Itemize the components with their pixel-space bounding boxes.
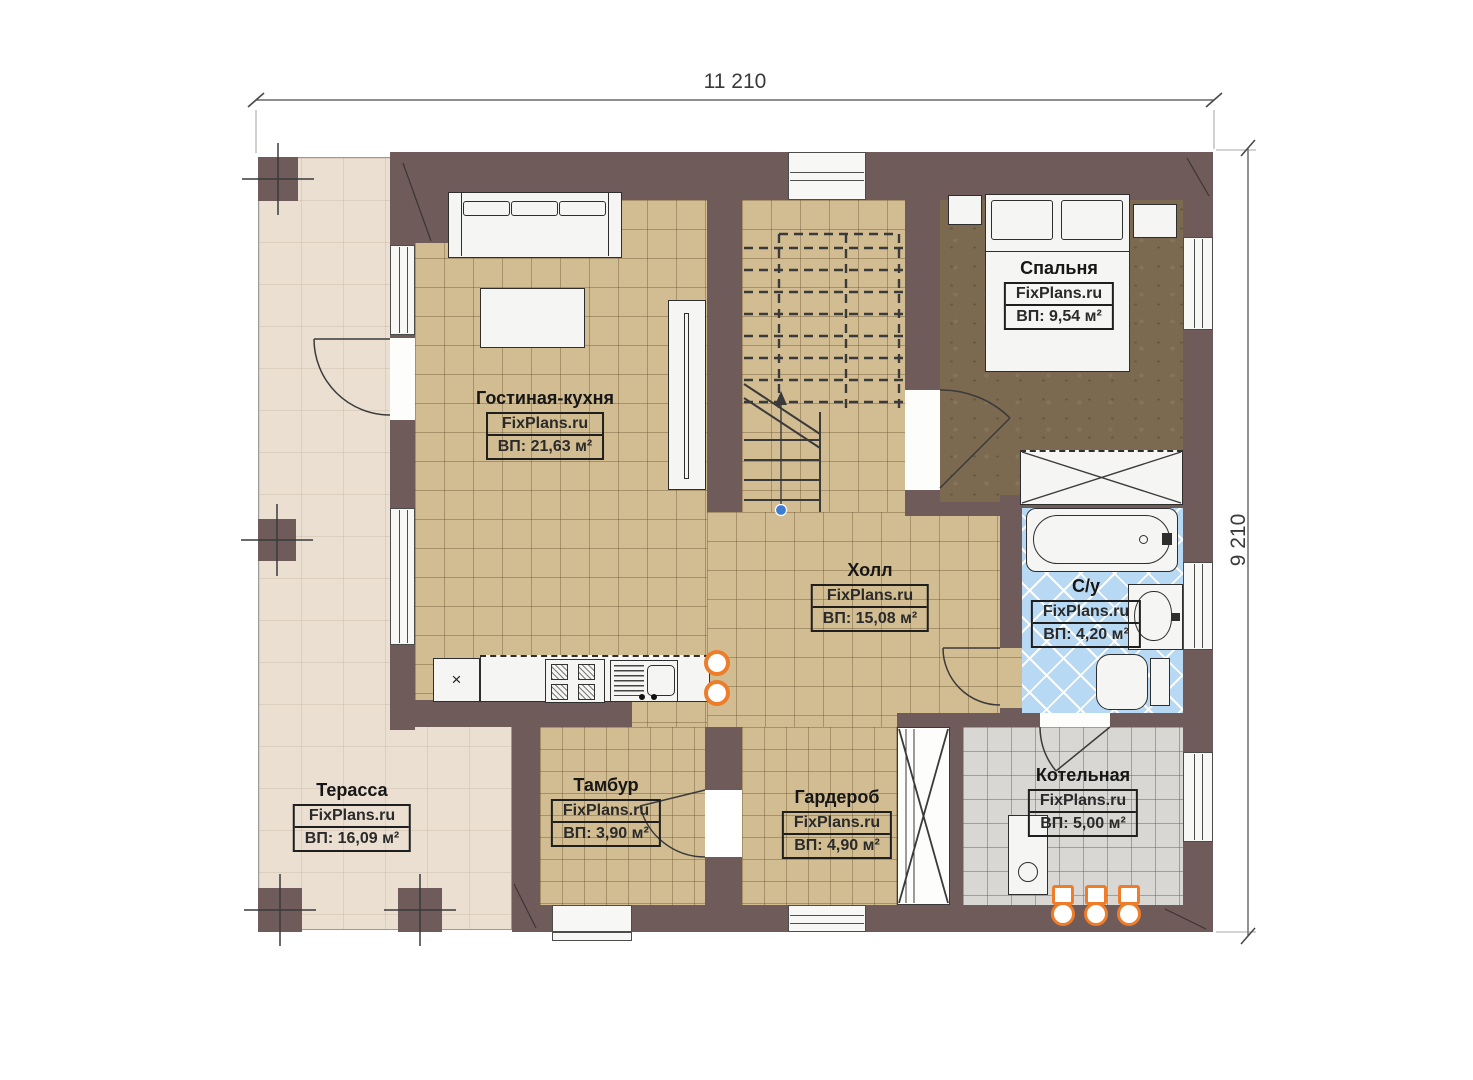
window-south: [788, 905, 866, 932]
sink-faucet: [651, 694, 657, 700]
label-boiler: Котельная FixPlans.ru ВП: 5,00 м²: [1028, 765, 1138, 837]
toilet: [1096, 652, 1172, 714]
riser-pipe: [704, 650, 730, 676]
stove-burner: [578, 664, 595, 680]
sink-faucet: [639, 694, 645, 700]
wall-vestibule-east-bottom: [705, 857, 742, 905]
room-name: Гардероб: [782, 787, 892, 808]
wall-bath-west-top: [1000, 495, 1022, 648]
window-west-2: [390, 508, 415, 645]
sofa: [448, 192, 622, 258]
room-area: ВП: 3,90 м²: [553, 823, 659, 845]
terrace-pillar: [258, 888, 302, 932]
stove-burner: [578, 684, 595, 700]
boiler-door-opening: [1040, 713, 1110, 727]
room-area: ВП: 15,08 м²: [813, 608, 927, 630]
bathtub-inner: [1033, 515, 1170, 564]
sofa-cushion: [511, 201, 558, 216]
kitchen-sink: [610, 660, 678, 702]
sink-tap: [1171, 613, 1180, 621]
label-bedroom: Спальня FixPlans.ru ВП: 9,54 м²: [1004, 258, 1114, 330]
room-name: Холл: [811, 560, 929, 581]
label-bathroom: С/у FixPlans.ru ВП: 4,20 м²: [1031, 576, 1141, 648]
toilet-bowl: [1096, 654, 1148, 710]
stove-burner: [551, 684, 568, 700]
terrace-pillar: [258, 519, 296, 561]
window-east-bathroom: [1183, 562, 1213, 650]
dimension-right: 9 210: [1227, 509, 1251, 571]
window-east-boiler: [1183, 752, 1213, 842]
wall-boiler-west: [950, 727, 963, 905]
window-east-bedroom: [1183, 237, 1213, 330]
sofa-armrest: [449, 193, 462, 256]
room-name: Тамбур: [551, 775, 661, 796]
stove: [545, 659, 605, 703]
brand-text: FixPlans.ru: [488, 414, 602, 436]
bathtub: [1026, 508, 1178, 572]
brand-text: FixPlans.ru: [1030, 791, 1136, 813]
entrance-step: [552, 932, 632, 941]
bathtub-faucet: [1139, 535, 1148, 544]
boiler-gauge: [1018, 862, 1038, 882]
bedroom-door-opening: [905, 390, 940, 490]
blanket-edge: [986, 251, 1129, 252]
sofa-cushion: [559, 201, 606, 216]
brand-text: FixPlans.ru: [553, 801, 659, 823]
tv-console: [668, 300, 706, 490]
room-area: ВП: 16,09 м²: [295, 828, 409, 850]
room-area: ВП: 5,00 м²: [1030, 813, 1136, 835]
label-hall: Холл FixPlans.ru ВП: 15,08 м²: [811, 560, 929, 632]
boiler-pipe-outlet: [1084, 902, 1108, 926]
sofa-cushion: [463, 201, 510, 216]
label-living: Гостиная-кухня FixPlans.ru ВП: 21,63 м²: [476, 388, 614, 460]
room-area: ВП: 4,90 м²: [784, 835, 890, 857]
boiler-pipe-outlet: [1051, 902, 1075, 926]
terrace-pillar: [398, 888, 442, 932]
room-name: Спальня: [1004, 258, 1114, 279]
riser-pipe: [704, 680, 730, 706]
room-area: ВП: 4,20 м²: [1033, 624, 1139, 646]
label-vestibule: Тамбур FixPlans.ru ВП: 3,90 м²: [551, 775, 661, 847]
wall-kitchen-south: [390, 700, 632, 727]
entrance-door: [552, 905, 632, 932]
bathtub-faucet: [1162, 533, 1172, 545]
wall-vestibule-east-top: [705, 727, 742, 790]
stove-burner: [551, 664, 568, 680]
terrace-pillar: [258, 157, 298, 201]
ventilation-shaft: [897, 727, 950, 905]
room-area: ВП: 9,54 м²: [1006, 306, 1112, 328]
sink-basin: [647, 665, 675, 696]
room-name: Котельная: [1028, 765, 1138, 786]
pillow: [991, 200, 1053, 240]
floor-plan: ×: [0, 0, 1473, 1080]
window-north: [788, 152, 866, 200]
wall-bath-west-bottom: [1000, 708, 1022, 727]
sink-drainer: [614, 665, 644, 696]
dimension-top: 11 210: [690, 70, 780, 94]
room-area: ВП: 21,63 м²: [488, 436, 602, 458]
wall-southwest: [512, 725, 540, 932]
window-west-1: [390, 245, 415, 335]
label-wardrobe: Гардероб FixPlans.ru ВП: 4,90 м²: [782, 787, 892, 859]
label-terrace: Терасса FixPlans.ru ВП: 16,09 м²: [293, 780, 411, 852]
stair-floor: [742, 200, 905, 512]
room-name: С/у: [1031, 576, 1141, 597]
wall-stairs-bedroom: [905, 200, 940, 390]
wall-living-stairs: [707, 200, 742, 512]
fridge-x-icon: ×: [452, 670, 462, 690]
boiler-pipe-outlet: [1117, 902, 1141, 926]
nightstand: [948, 195, 982, 225]
pillow: [1061, 200, 1123, 240]
room-name: Терасса: [293, 780, 411, 801]
brand-text: FixPlans.ru: [295, 806, 409, 828]
brand-text: FixPlans.ru: [813, 586, 927, 608]
coffee-table: [480, 288, 585, 348]
tv-screen: [684, 313, 689, 479]
room-name: Гостиная-кухня: [476, 388, 614, 409]
wardrobe-closet: [1020, 450, 1183, 505]
fridge: ×: [433, 658, 480, 702]
toilet-tank: [1150, 658, 1170, 706]
brand-text: FixPlans.ru: [784, 813, 890, 835]
brand-text: FixPlans.ru: [1006, 284, 1112, 306]
nightstand: [1133, 204, 1177, 238]
sofa-armrest: [608, 193, 621, 256]
brand-text: FixPlans.ru: [1033, 602, 1139, 624]
living-kitchen-floor: [415, 200, 707, 727]
terrace-door-opening: [390, 338, 415, 420]
